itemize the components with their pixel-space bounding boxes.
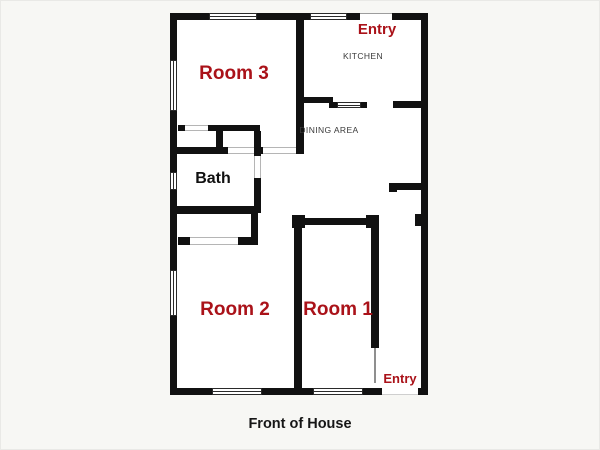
kitchen-label: KITCHEN: [331, 52, 395, 61]
room3-bottom-wall-segment: [178, 125, 185, 131]
left-wall-segment: [170, 190, 177, 270]
entry-door-opening-bottom: [382, 388, 418, 395]
entry-label-bottom: Entry: [380, 372, 420, 385]
kitchen-passthrough-window: [337, 102, 361, 108]
left-wall-segment: [170, 316, 177, 395]
closet-door-opening: [185, 125, 208, 131]
kitchen-top-window: [310, 13, 347, 20]
bottom-wall-segment: [363, 388, 382, 395]
top-wall-segment: [257, 13, 310, 20]
entry-label-top: Entry: [354, 22, 400, 37]
left-wall-segment: [170, 13, 177, 60]
room1-label: Room 1: [293, 300, 383, 319]
room3-left-window: [170, 60, 177, 111]
top-wall-segment: [347, 13, 360, 20]
dining-stub-end-notch: [389, 183, 397, 192]
room2-top-wall-segment: [178, 237, 190, 245]
kitchen-counter-endcap: [361, 102, 367, 108]
room2-bottom-window: [212, 388, 262, 395]
room2-top-wall-segment: [238, 237, 258, 245]
kitchen-counter-step: [329, 102, 337, 108]
room2-door-opening: [190, 237, 238, 245]
room3-top-window: [209, 13, 257, 20]
kitchen-right-wall-stub: [393, 101, 421, 108]
right-wall: [421, 13, 428, 395]
floor-plan: Room 3 KITCHEN Entry DINING AREA Bath Ro…: [0, 0, 600, 450]
room1-bottom-window: [313, 388, 363, 395]
wall-junction: [254, 147, 263, 154]
dining-area-label: DINING AREA: [299, 126, 359, 135]
room1-door-opening: [374, 348, 376, 383]
bath-window: [170, 172, 177, 190]
hallway-door-jamb: [415, 214, 421, 226]
closet-door-opening: [228, 147, 254, 154]
hall-door-opening: [263, 147, 296, 154]
room2-label: Room 2: [190, 300, 280, 319]
room2-left-window: [170, 270, 177, 316]
bottom-wall-segment: [262, 388, 313, 395]
bath-door-opening: [254, 156, 261, 178]
bottom-wall-segment: [418, 388, 428, 395]
room1-right-wall: [371, 218, 379, 348]
entry-door-opening-top: [360, 13, 392, 20]
bath-bottom-wall: [170, 206, 258, 214]
left-wall-segment: [170, 111, 177, 172]
bottom-wall-segment: [170, 388, 212, 395]
room1-door-jamb-left: [292, 215, 305, 228]
room3-label: Room 3: [188, 64, 280, 83]
front-of-house-caption: Front of House: [0, 416, 600, 432]
bath-top-wall: [170, 147, 228, 154]
closet-partition-wall: [216, 131, 223, 147]
bath-label: Bath: [191, 171, 235, 187]
